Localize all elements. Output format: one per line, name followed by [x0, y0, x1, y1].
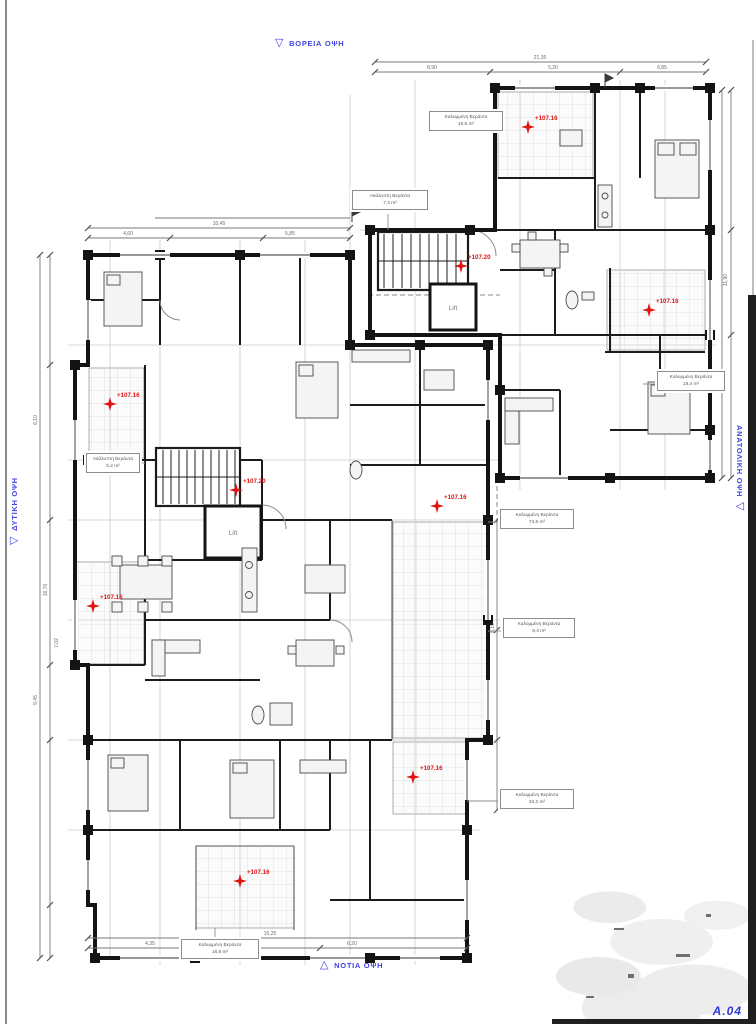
- area-value: 74,6 m²: [504, 519, 570, 526]
- area-value: 5,2 m²: [90, 463, 136, 470]
- dimension-value: 8,90: [427, 65, 437, 71]
- area-annotation-box: Καλυμμένη Βεράντα19,6 m²: [429, 111, 503, 131]
- area-name: Καλυμμένη Βεράντα: [507, 621, 571, 628]
- area-name: Καλυμμένη Βεράντα: [504, 792, 570, 799]
- south-elevation-label: △ ΝΟΤΙΑ ΟΨΗ: [320, 960, 383, 971]
- level-value: +107.16: [444, 494, 467, 501]
- page-edge-left: [5, 0, 7, 1024]
- dimension-value: 5,20: [548, 65, 558, 71]
- dimension-value: 6,85: [657, 65, 667, 71]
- area-name: Ακάλυπτη Βεράντα: [356, 193, 424, 200]
- elevation-text: ΑΝΑΤΟΛΙΚΗ ΟΨΗ: [735, 425, 744, 497]
- floor-plan-drawing: Lift Lift: [0, 0, 756, 1024]
- elevation-text: ΒΟΡΕΙΑ ΟΨΗ: [289, 39, 344, 48]
- page-edge-right-soft: [752, 40, 754, 300]
- elevation-triangle-icon: ▽: [275, 38, 284, 49]
- area-name: Καλυμμένη Βεράντα: [504, 512, 570, 519]
- dimension-value: 4,35: [145, 941, 155, 947]
- area-annotation-box: Καλυμμένη Βεράντα9,4 m²: [503, 618, 575, 638]
- page-edge-bottom: [552, 1019, 756, 1024]
- title-block-smudge: A.04: [556, 886, 748, 1019]
- dimension-value: 8,15: [490, 623, 496, 633]
- level-value: +107.16: [420, 765, 443, 772]
- area-name: Καλυμμένη Βεράντα: [433, 114, 499, 121]
- area-annotation-box: Καλυμμένη Βεράντα18,4 m²: [657, 371, 725, 391]
- level-value: +107.20: [468, 254, 491, 261]
- dimension-value: 7,02: [54, 638, 60, 648]
- dimension-value: 16,70: [43, 584, 49, 597]
- area-value: 34,2 m²: [504, 799, 570, 806]
- elevation-text: ΝΟΤΙΑ ΟΨΗ: [334, 961, 383, 970]
- dimension-value: 21,35: [534, 55, 547, 61]
- west-elevation-label: ▽ ΔΥΤΙΚΗ ΟΨΗ: [9, 477, 20, 545]
- area-name: Καλυμμένη Βεράντα: [661, 374, 721, 381]
- area-value: 9,4 m²: [507, 628, 571, 635]
- elevation-triangle-icon: ▽: [9, 536, 20, 545]
- level-value: +107.16: [247, 869, 270, 876]
- dimension-value: 4,60: [123, 231, 133, 237]
- lift-box-upper: Lift: [430, 284, 476, 330]
- drawing-sheet: Lift Lift: [0, 0, 756, 1024]
- north-elevation-label: ▽ ΒΟΡΕΙΑ ΟΨΗ: [275, 38, 344, 49]
- dimension-value: 6,10: [33, 415, 39, 425]
- elevation-text: ΔΥΤΙΚΗ ΟΨΗ: [10, 477, 19, 531]
- dimension-value: 9,45: [33, 695, 39, 705]
- level-value: +107.16: [100, 594, 123, 601]
- dimension-value: 11,90: [723, 274, 729, 286]
- area-annotation-box: Καλυμμένη Βεράντα16,8 m²: [181, 939, 259, 959]
- dimension-value: 10,45: [213, 221, 226, 227]
- area-name: Ακάλυπτη Βεράντα: [90, 456, 136, 463]
- lift-label: Lift: [449, 305, 458, 312]
- dimension-value: 15,25: [264, 931, 277, 937]
- level-value: +107.16: [535, 115, 558, 122]
- level-value: +107.16: [117, 392, 140, 399]
- east-elevation-label: ΑΝΑΤΟΛΙΚΗ ΟΨΗ ▽: [734, 425, 745, 511]
- area-annotation-box: Καλυμμένη Βεράντα74,6 m²: [500, 509, 574, 529]
- area-annotation-box: Ακάλυπτη Βεράντα5,2 m²: [86, 453, 140, 473]
- area-name: Καλυμμένη Βεράντα: [185, 942, 255, 949]
- dimension-value: 5,85: [285, 231, 295, 237]
- area-annotation-box: Ακάλυπτη Βεράντα7,4 m²: [352, 190, 428, 210]
- stairs-main: [156, 448, 240, 506]
- area-annotation-box: Καλυμμένη Βεράντα34,2 m²: [500, 789, 574, 809]
- area-value: 18,4 m²: [661, 381, 721, 388]
- level-value: +107.16: [656, 298, 679, 305]
- area-value: 19,6 m²: [433, 121, 499, 128]
- lift-label: Lift: [229, 530, 238, 537]
- level-value: +107.20: [243, 478, 266, 485]
- area-value: 16,8 m²: [185, 949, 255, 956]
- stairs-upper: [378, 232, 468, 290]
- sheet-number: A.04: [713, 1004, 742, 1018]
- page-edge-right: [748, 295, 756, 1024]
- area-value: 7,4 m²: [356, 200, 424, 207]
- elevation-triangle-icon: △: [320, 960, 329, 971]
- elevation-triangle-icon: ▽: [734, 502, 745, 511]
- dimension-value: 6,20: [347, 941, 357, 947]
